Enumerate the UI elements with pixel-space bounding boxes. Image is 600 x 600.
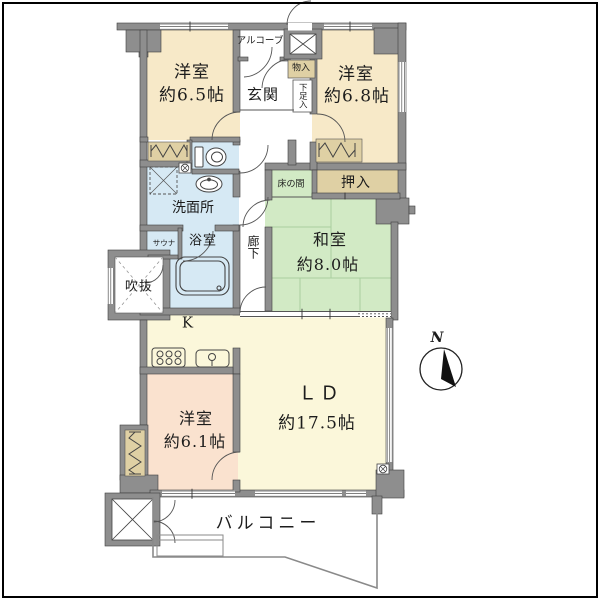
room-label-tokonoma: 床の間 [277,181,304,190]
room-size-washitsu: 約8.0帖 [297,257,359,273]
entrance-opening [288,23,312,31]
room-label-oshiire: 押入 [341,176,371,190]
room-label-alcove: アルコーブ [237,36,284,46]
room-label-monoire: 物入 [292,65,310,74]
room-label-senmenjo: 洗面所 [172,201,214,215]
room-label-washitsu: 和室 [313,232,347,248]
room-label-yoshitsu65: 洋室 [174,65,210,82]
compass-north-label: N [431,331,444,345]
room-label-rouka: 廊下 [247,235,259,259]
washbasin-icon [196,176,222,192]
room-label-genkan: 玄関 [247,88,279,103]
room-label-yoshitsu68: 洋室 [338,67,374,84]
room-label-ld: ＬＤ [298,385,342,404]
room-size-ld: 約17.5帖 [278,416,356,433]
room-label-fukinuke: 吹抜 [125,281,153,294]
room-label-kutsubako: 下足入 [298,83,307,109]
compass-icon [420,348,462,390]
room-size-yoshitsu65: 約6.5帖 [159,88,225,105]
room-label-kitchen: K [182,316,194,331]
room-label-sauna: サウナ [153,239,176,247]
toilet-icon [195,147,226,167]
room-label-yokushitsu: 浴室 [189,235,217,248]
room-label-balcony: バルコニー [216,516,321,533]
floor-plan-page: 洋室 約6.5帖 アルコーブ 玄関 物入 下足入 洋室 約6.8帖 押入 床の間… [0,0,600,600]
room-size-yoshitsu61: 約6.1帖 [164,434,226,450]
balcony-outline [153,497,377,588]
room-label-yoshitsu61: 洋室 [179,411,213,427]
room-size-yoshitsu68: 約6.8帖 [324,89,390,106]
